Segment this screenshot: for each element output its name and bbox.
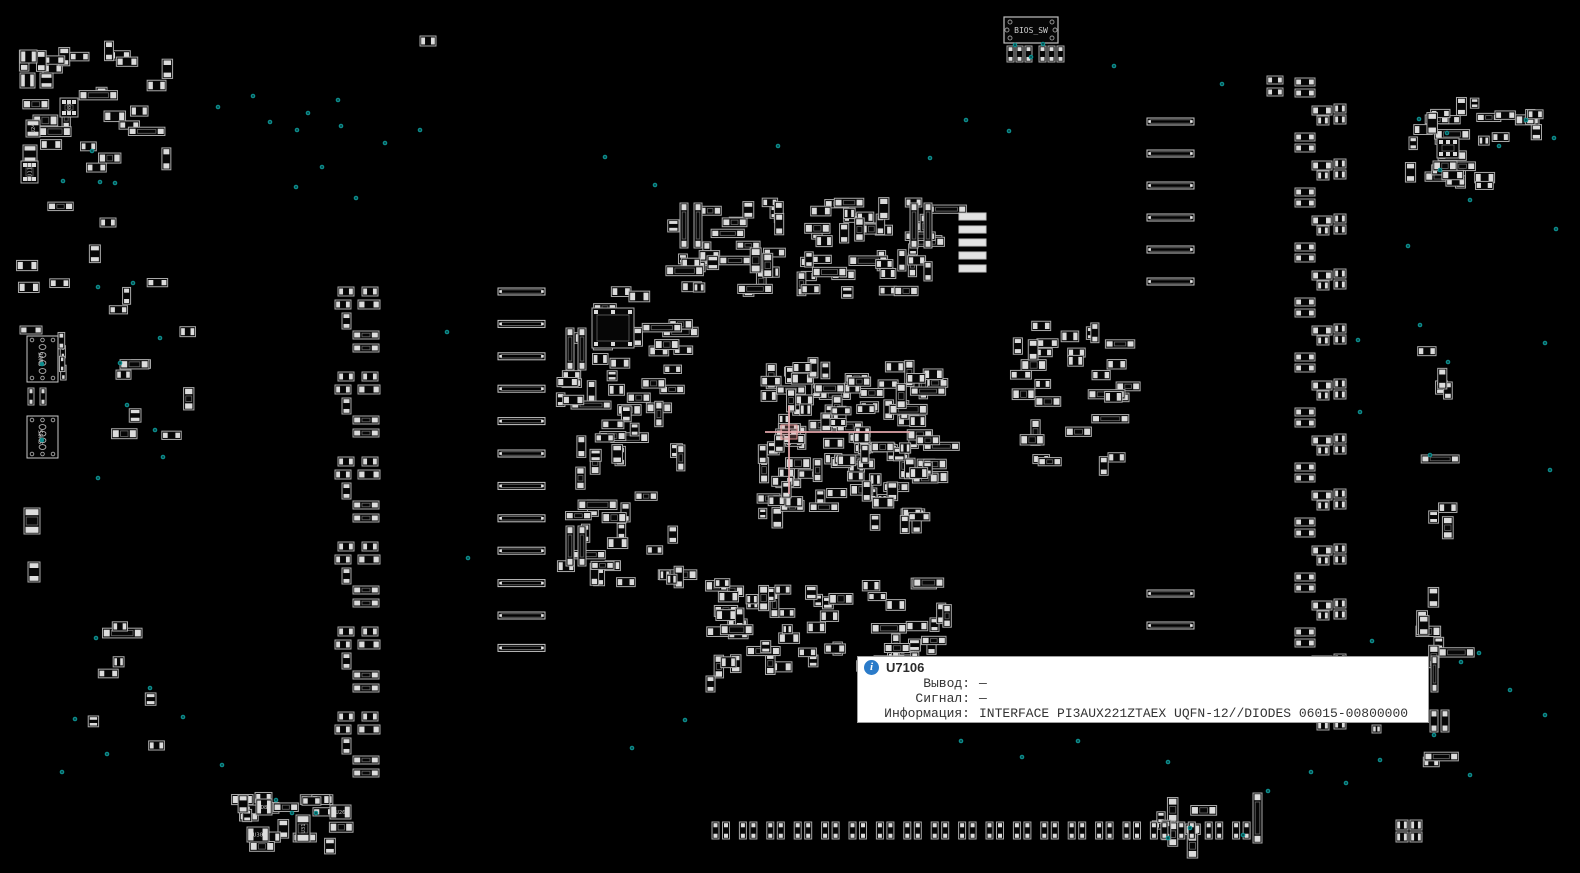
component[interactable] xyxy=(576,467,585,489)
component[interactable] xyxy=(758,445,767,464)
component[interactable] xyxy=(1439,648,1475,657)
pcb-board[interactable]: D88U24U11D8U30U31U26SW06SW05BIOS_SW xyxy=(0,0,1580,873)
component[interactable] xyxy=(100,218,116,227)
component[interactable] xyxy=(677,445,685,471)
component[interactable] xyxy=(113,657,124,667)
component[interactable] xyxy=(719,256,751,265)
component[interactable] xyxy=(775,213,784,234)
component[interactable] xyxy=(884,644,909,653)
bios-switch[interactable]: BIOS_SW xyxy=(1004,17,1064,62)
component[interactable] xyxy=(812,255,831,263)
component[interactable] xyxy=(1295,474,1315,482)
component[interactable] xyxy=(338,287,354,296)
component[interactable] xyxy=(1334,280,1346,289)
component[interactable] xyxy=(335,640,351,649)
bar-component[interactable] xyxy=(498,547,545,554)
component[interactable] xyxy=(335,725,351,734)
component[interactable] xyxy=(1317,336,1329,345)
component[interactable] xyxy=(1191,806,1217,816)
component[interactable] xyxy=(116,57,137,66)
component[interactable] xyxy=(706,676,715,692)
component[interactable] xyxy=(353,586,379,594)
component[interactable] xyxy=(767,822,774,839)
component[interactable] xyxy=(900,516,909,534)
component[interactable] xyxy=(86,163,106,172)
component[interactable] xyxy=(655,401,663,426)
component[interactable] xyxy=(862,481,871,501)
component[interactable] xyxy=(943,605,951,628)
component[interactable] xyxy=(622,406,632,422)
component[interactable] xyxy=(680,203,688,248)
component[interactable] xyxy=(1253,793,1262,843)
component[interactable] xyxy=(17,260,38,270)
component[interactable] xyxy=(829,593,853,604)
component-u24[interactable]: U24 xyxy=(26,120,40,137)
component[interactable] xyxy=(1312,381,1332,390)
component[interactable] xyxy=(1312,216,1332,225)
component[interactable] xyxy=(50,279,70,288)
component[interactable] xyxy=(1312,271,1332,280)
component[interactable] xyxy=(329,822,353,832)
component[interactable] xyxy=(922,636,947,644)
component[interactable] xyxy=(1038,458,1061,466)
component[interactable] xyxy=(761,641,771,653)
component[interactable] xyxy=(358,470,380,479)
component[interactable] xyxy=(1295,144,1315,152)
component[interactable] xyxy=(1437,138,1459,158)
component[interactable] xyxy=(830,418,846,426)
component[interactable] xyxy=(1295,573,1315,581)
component[interactable] xyxy=(750,248,761,273)
component-d88[interactable]: D88 xyxy=(60,98,78,117)
component[interactable] xyxy=(362,287,378,296)
component[interactable] xyxy=(595,434,614,442)
component[interactable] xyxy=(1334,159,1346,168)
component[interactable] xyxy=(1312,326,1332,335)
component[interactable] xyxy=(1091,323,1099,343)
component[interactable] xyxy=(1295,518,1315,526)
component[interactable] xyxy=(840,224,849,243)
component[interactable] xyxy=(23,145,37,163)
component[interactable] xyxy=(898,250,906,271)
component[interactable] xyxy=(642,323,681,332)
component[interactable] xyxy=(924,203,932,248)
component[interactable] xyxy=(894,286,918,295)
component[interactable] xyxy=(1010,370,1031,379)
component[interactable] xyxy=(1312,546,1332,555)
component[interactable] xyxy=(904,822,911,839)
component[interactable] xyxy=(1439,503,1457,513)
component[interactable] xyxy=(1427,113,1438,134)
component[interactable] xyxy=(1334,324,1346,333)
component[interactable] xyxy=(420,36,436,46)
component[interactable] xyxy=(812,267,846,276)
component[interactable] xyxy=(1317,116,1329,125)
component[interactable] xyxy=(815,384,845,393)
component[interactable] xyxy=(353,514,379,522)
component[interactable] xyxy=(36,51,46,72)
component[interactable] xyxy=(1410,820,1422,830)
component[interactable] xyxy=(335,555,351,564)
component[interactable] xyxy=(104,111,125,122)
component[interactable] xyxy=(1099,457,1108,476)
component[interactable] xyxy=(910,468,928,479)
component[interactable] xyxy=(871,624,906,634)
component[interactable] xyxy=(822,822,829,839)
component[interactable] xyxy=(861,445,869,464)
component[interactable] xyxy=(759,508,767,518)
component[interactable] xyxy=(664,365,682,373)
component[interactable] xyxy=(750,822,757,839)
component[interactable] xyxy=(612,445,623,464)
component[interactable] xyxy=(1478,136,1489,145)
component[interactable] xyxy=(694,203,702,248)
component[interactable] xyxy=(1035,397,1061,407)
component[interactable] xyxy=(1013,822,1020,839)
component[interactable] xyxy=(1334,500,1346,509)
component[interactable] xyxy=(910,416,926,427)
test-point[interactable] xyxy=(40,438,45,443)
component[interactable] xyxy=(1295,298,1315,306)
component[interactable] xyxy=(969,822,976,839)
component[interactable] xyxy=(342,653,351,669)
component[interactable] xyxy=(738,284,773,293)
component[interactable] xyxy=(1233,822,1240,839)
component[interactable] xyxy=(602,513,626,523)
component[interactable] xyxy=(1317,281,1329,290)
component[interactable] xyxy=(88,716,98,727)
component[interactable] xyxy=(617,523,625,538)
component[interactable] xyxy=(832,822,839,839)
component-u30[interactable]: U30 xyxy=(247,827,269,842)
component[interactable] xyxy=(1105,340,1134,348)
component[interactable] xyxy=(1334,544,1346,553)
component[interactable] xyxy=(358,300,380,309)
component[interactable] xyxy=(777,822,784,839)
component[interactable] xyxy=(907,374,926,384)
component[interactable] xyxy=(711,229,744,237)
component[interactable] xyxy=(1057,46,1064,62)
component[interactable] xyxy=(353,769,379,777)
component[interactable] xyxy=(913,578,944,587)
component[interactable] xyxy=(1431,656,1438,692)
component[interactable] xyxy=(844,208,856,218)
component[interactable] xyxy=(162,148,171,170)
component[interactable] xyxy=(1430,710,1438,732)
component[interactable] xyxy=(70,52,89,61)
component[interactable] xyxy=(353,344,379,352)
component[interactable] xyxy=(338,372,354,381)
component[interactable] xyxy=(1295,529,1315,537)
component[interactable] xyxy=(353,756,379,764)
component[interactable] xyxy=(743,202,754,218)
bar-component[interactable] xyxy=(498,450,545,457)
component[interactable] xyxy=(931,822,938,839)
component[interactable] xyxy=(1419,616,1429,635)
component[interactable] xyxy=(860,389,884,398)
component[interactable] xyxy=(1150,822,1157,839)
bar-component[interactable] xyxy=(498,353,545,360)
component[interactable] xyxy=(335,385,351,394)
component[interactable] xyxy=(353,684,379,692)
component[interactable] xyxy=(1334,599,1346,608)
component[interactable] xyxy=(162,431,181,439)
component[interactable] xyxy=(1531,125,1541,140)
bar-component[interactable] xyxy=(498,418,545,425)
bar-component[interactable] xyxy=(1147,246,1194,253)
component[interactable] xyxy=(712,822,719,839)
component[interactable] xyxy=(1495,111,1515,119)
component[interactable] xyxy=(610,358,630,368)
component[interactable] xyxy=(557,378,578,387)
component[interactable] xyxy=(362,542,378,551)
bar-component[interactable] xyxy=(1147,150,1194,157)
bar-component[interactable] xyxy=(1147,622,1194,629)
component[interactable] xyxy=(302,797,321,805)
component[interactable] xyxy=(805,822,812,839)
component[interactable] xyxy=(1295,133,1315,141)
component[interactable] xyxy=(997,822,1004,839)
component[interactable] xyxy=(1317,171,1329,180)
component[interactable] xyxy=(629,291,650,302)
component[interactable] xyxy=(1334,379,1346,388)
component[interactable] xyxy=(116,370,131,379)
component-u31[interactable]: U31 xyxy=(296,815,310,842)
component[interactable] xyxy=(105,41,114,60)
component[interactable] xyxy=(362,372,378,381)
component[interactable] xyxy=(1334,335,1346,344)
component[interactable] xyxy=(889,404,927,414)
component[interactable] xyxy=(805,252,813,267)
component[interactable] xyxy=(721,657,736,668)
component[interactable] xyxy=(848,377,871,386)
component[interactable] xyxy=(342,398,351,414)
component[interactable] xyxy=(131,106,148,116)
component[interactable] xyxy=(40,73,53,88)
component[interactable] xyxy=(820,611,838,622)
component[interactable] xyxy=(587,381,596,402)
component[interactable] xyxy=(273,803,298,812)
component[interactable] xyxy=(1012,389,1035,400)
component[interactable] xyxy=(79,91,117,100)
component[interactable] xyxy=(338,542,354,551)
component[interactable] xyxy=(1334,225,1346,234)
component[interactable] xyxy=(353,501,379,509)
component[interactable] xyxy=(1178,822,1185,839)
component[interactable] xyxy=(923,369,943,380)
component[interactable] xyxy=(862,580,879,590)
component[interactable] xyxy=(607,538,627,549)
component[interactable] xyxy=(1016,46,1023,62)
component[interactable] xyxy=(1456,97,1466,115)
bar-component[interactable] xyxy=(498,482,545,489)
component[interactable] xyxy=(816,236,832,247)
component[interactable] xyxy=(916,436,939,445)
bar-component[interactable] xyxy=(1147,278,1194,285)
component[interactable] xyxy=(723,822,730,839)
component[interactable] xyxy=(857,405,875,414)
component[interactable] xyxy=(338,457,354,466)
component[interactable] xyxy=(868,593,886,601)
component[interactable] xyxy=(1396,832,1408,842)
component[interactable] xyxy=(855,218,864,241)
component[interactable] xyxy=(1020,435,1044,445)
component[interactable] xyxy=(358,555,380,564)
component[interactable] xyxy=(1334,610,1346,619)
component[interactable] xyxy=(668,220,679,232)
component[interactable] xyxy=(655,340,679,350)
component[interactable] xyxy=(123,287,131,304)
component[interactable] xyxy=(1267,76,1283,84)
component[interactable] xyxy=(24,508,40,534)
bar-component[interactable] xyxy=(959,239,986,246)
bar-component[interactable] xyxy=(498,580,545,587)
component[interactable] xyxy=(854,432,870,443)
bar-component[interactable] xyxy=(959,213,986,220)
component[interactable] xyxy=(1372,725,1381,733)
component-d8[interactable]: D8 xyxy=(256,799,272,815)
component[interactable] xyxy=(593,354,609,365)
component[interactable] xyxy=(147,80,166,91)
bar-component[interactable] xyxy=(1147,118,1194,125)
component[interactable] xyxy=(718,591,738,601)
component[interactable] xyxy=(763,253,773,277)
component[interactable] xyxy=(250,841,275,851)
component[interactable] xyxy=(1405,163,1415,183)
component[interactable] xyxy=(927,205,967,213)
component[interactable] xyxy=(28,562,40,582)
component[interactable] xyxy=(787,389,796,412)
component[interactable] xyxy=(986,822,993,839)
component[interactable] xyxy=(1041,822,1048,839)
component[interactable] xyxy=(1021,360,1046,371)
component[interactable] xyxy=(342,568,351,584)
component[interactable] xyxy=(796,395,814,405)
component[interactable] xyxy=(1295,199,1315,207)
component[interactable] xyxy=(149,741,165,750)
component[interactable] xyxy=(1442,170,1464,179)
component[interactable] xyxy=(184,388,194,410)
component[interactable] xyxy=(1428,587,1439,607)
component[interactable] xyxy=(811,206,831,216)
component[interactable] xyxy=(807,622,825,633)
component[interactable] xyxy=(611,287,631,297)
bar-component[interactable] xyxy=(959,226,986,233)
component[interactable] xyxy=(1106,822,1113,839)
component[interactable] xyxy=(1107,360,1126,369)
component[interactable] xyxy=(353,416,379,424)
component[interactable] xyxy=(1295,628,1315,636)
component[interactable] xyxy=(1312,491,1332,500)
component[interactable] xyxy=(1079,822,1086,839)
component[interactable] xyxy=(20,50,37,63)
component[interactable] xyxy=(1295,89,1315,97)
component[interactable] xyxy=(1470,98,1478,108)
component[interactable] xyxy=(1061,331,1079,342)
component[interactable] xyxy=(1334,434,1346,443)
component[interactable] xyxy=(1396,820,1408,830)
component[interactable] xyxy=(1096,822,1103,839)
component[interactable] xyxy=(1108,453,1125,462)
component[interactable] xyxy=(1025,46,1032,62)
component[interactable] xyxy=(715,579,730,588)
component[interactable] xyxy=(775,585,791,594)
component[interactable] xyxy=(128,127,165,135)
component[interactable] xyxy=(342,313,351,329)
bar-component[interactable] xyxy=(959,265,986,272)
component[interactable] xyxy=(910,203,918,248)
component[interactable] xyxy=(48,202,73,210)
component[interactable] xyxy=(591,561,614,569)
component[interactable] xyxy=(1295,309,1315,317)
component[interactable] xyxy=(112,622,127,631)
component[interactable] xyxy=(602,420,624,429)
component[interactable] xyxy=(642,379,665,388)
component[interactable] xyxy=(720,625,752,635)
component[interactable] xyxy=(834,198,863,207)
component[interactable] xyxy=(809,503,838,512)
component[interactable] xyxy=(779,414,790,423)
component[interactable] xyxy=(1066,427,1092,436)
component[interactable] xyxy=(667,574,677,584)
component[interactable] xyxy=(1024,822,1031,839)
component[interactable] xyxy=(40,388,46,405)
component[interactable] xyxy=(1123,822,1130,839)
component[interactable] xyxy=(878,380,898,388)
bar-component[interactable] xyxy=(498,320,545,327)
component[interactable] xyxy=(1007,46,1014,62)
component[interactable] xyxy=(353,331,379,339)
component[interactable] xyxy=(1105,392,1123,403)
component[interactable] xyxy=(779,633,800,643)
connector-sw06[interactable]: SW06 xyxy=(27,336,58,382)
component[interactable] xyxy=(872,497,893,508)
component[interactable] xyxy=(1295,408,1315,416)
component[interactable] xyxy=(1334,390,1346,399)
component[interactable] xyxy=(1295,78,1315,86)
component[interactable] xyxy=(887,822,894,839)
component[interactable] xyxy=(635,492,657,500)
component[interactable] xyxy=(112,429,137,439)
component[interactable] xyxy=(58,332,65,348)
component[interactable] xyxy=(578,328,586,370)
bar-component[interactable] xyxy=(498,612,545,619)
component[interactable] xyxy=(358,385,380,394)
component[interactable] xyxy=(885,362,904,372)
component[interactable] xyxy=(910,387,945,395)
component[interactable] xyxy=(338,627,354,636)
component[interactable] xyxy=(1032,321,1051,330)
component[interactable] xyxy=(1216,822,1223,839)
component[interactable] xyxy=(831,407,851,415)
component[interactable] xyxy=(1068,355,1083,366)
component[interactable] xyxy=(630,423,639,436)
component[interactable] xyxy=(1092,415,1129,423)
component[interactable] xyxy=(739,822,746,839)
component[interactable] xyxy=(816,490,825,504)
component[interactable] xyxy=(20,326,42,334)
component[interactable] xyxy=(1037,339,1058,348)
component[interactable] xyxy=(353,599,379,607)
bar-component[interactable] xyxy=(959,252,986,259)
component[interactable] xyxy=(353,671,379,679)
component[interactable] xyxy=(886,600,905,611)
component[interactable] xyxy=(592,308,634,348)
component[interactable] xyxy=(81,142,97,151)
component[interactable] xyxy=(1492,133,1509,142)
component[interactable] xyxy=(129,409,141,422)
component[interactable] xyxy=(633,327,642,346)
